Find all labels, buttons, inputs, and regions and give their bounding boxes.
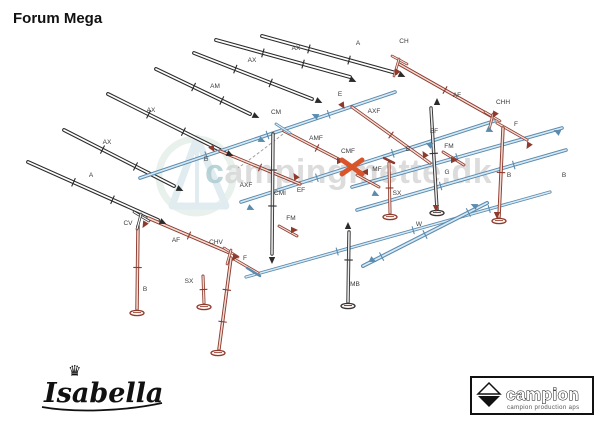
part-label: A xyxy=(89,172,94,179)
isabella-logo-text: Isabella xyxy=(43,378,163,409)
arrow-marker xyxy=(434,98,440,105)
pole-foot xyxy=(130,310,144,315)
part-label: B xyxy=(406,146,410,153)
part-label: B xyxy=(507,172,511,179)
arrow-marker xyxy=(524,141,533,150)
arrow-marker xyxy=(345,222,351,229)
pole-center-B-collar xyxy=(429,153,437,154)
part-label: SX xyxy=(393,190,402,197)
part-label: CH xyxy=(399,38,409,45)
part-label: G xyxy=(444,169,449,176)
pole-foot xyxy=(197,304,211,309)
part-label: FM xyxy=(286,215,295,222)
part-label: CM xyxy=(271,109,281,116)
pole-foot xyxy=(211,350,225,355)
part-label: AM xyxy=(210,83,220,90)
arrow-marker xyxy=(247,204,256,213)
arrow-marker xyxy=(269,257,275,264)
part-label: AMF xyxy=(309,135,323,142)
pole-foot xyxy=(341,303,355,308)
arrow-marker xyxy=(291,227,298,233)
part-label: A xyxy=(356,40,361,47)
diagram-page: campingmette.dk AAXAXAMAXAXACMEECHEFEFAX… xyxy=(0,0,600,424)
part-label: EF xyxy=(297,187,305,194)
part-label: MB xyxy=(350,281,360,288)
isabella-logo: ♛ Isabella xyxy=(30,358,180,418)
campion-logo-text: campion xyxy=(506,385,579,404)
pole-AM-inner xyxy=(156,69,250,114)
arrow-marker xyxy=(372,190,381,199)
part-label: CMI xyxy=(274,190,286,197)
pole-MB-inner xyxy=(348,232,349,302)
page-title: Forum Mega xyxy=(13,10,102,27)
part-label: AX xyxy=(103,139,112,146)
part-label: CV xyxy=(123,220,133,227)
part-label: AXF xyxy=(240,182,253,189)
part-label: AX xyxy=(248,57,257,64)
part-label: AXF xyxy=(368,108,381,115)
arrow-marker xyxy=(315,97,324,106)
campion-subtitle: campion production aps xyxy=(507,405,580,411)
part-label: EF xyxy=(430,128,438,135)
campion-logo: campion campion production aps xyxy=(470,376,594,416)
arrow-marker xyxy=(252,112,261,121)
arrow-marker xyxy=(140,220,149,229)
leg-front-center-inner xyxy=(219,258,231,349)
part-label: B xyxy=(143,286,147,293)
part-label: E xyxy=(338,91,343,98)
part-label: AX xyxy=(147,107,156,114)
part-label: W xyxy=(416,221,423,228)
part-label: B xyxy=(562,172,566,179)
leg-front-center-collar xyxy=(223,289,231,290)
part-label: F xyxy=(243,255,247,262)
pole-AX-3-inner xyxy=(108,94,224,152)
part-label: E xyxy=(204,156,209,163)
part-label: MF xyxy=(372,166,381,173)
part-label: AX xyxy=(292,45,301,52)
part-label: CHH xyxy=(496,99,510,106)
part-label: FM xyxy=(444,143,453,150)
leg-front-center-collar xyxy=(218,321,226,322)
pole-CMI-inner xyxy=(272,134,273,254)
arrow-marker xyxy=(176,185,185,194)
part-label: SX xyxy=(185,278,194,285)
pole-center-B-inner xyxy=(431,108,437,209)
pole-foot xyxy=(492,218,506,223)
part-label: F xyxy=(514,121,518,128)
part-label: CHV xyxy=(209,239,223,246)
pole-A-2-inner xyxy=(28,162,158,220)
pole-AX-4-inner xyxy=(64,130,174,186)
part-label: CMF xyxy=(341,148,355,155)
part-label: AF xyxy=(172,237,180,244)
pole-foot xyxy=(383,214,397,219)
pole-foot xyxy=(430,210,444,215)
part-label: AF xyxy=(453,92,461,99)
pole-A-1-inner xyxy=(262,36,396,73)
